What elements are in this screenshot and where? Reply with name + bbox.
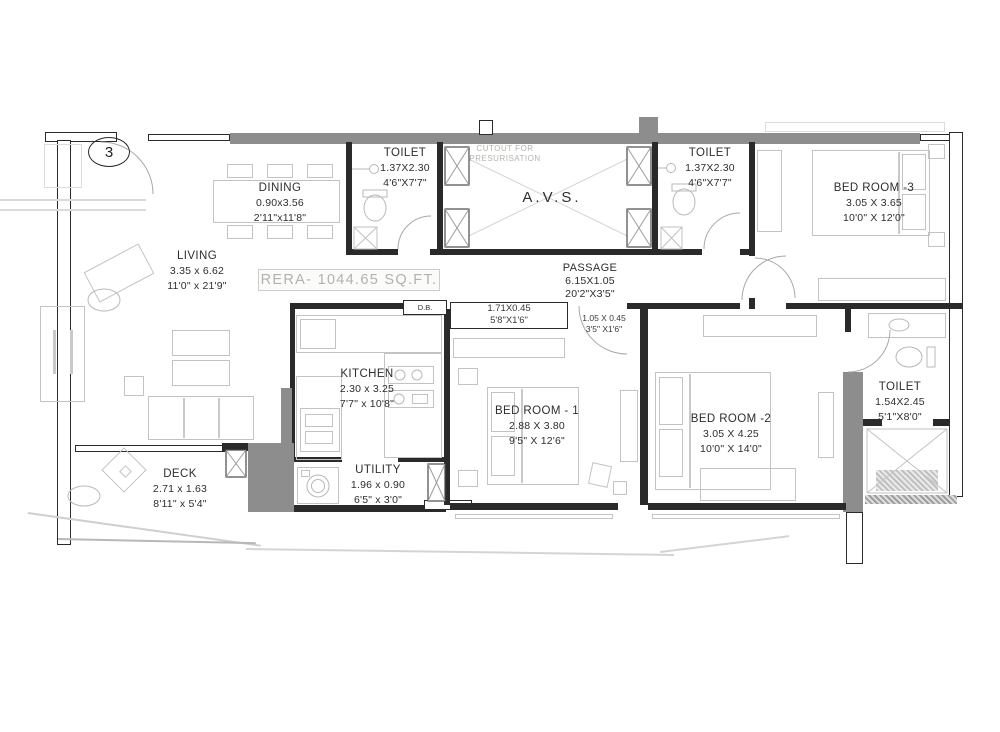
room-dim-imperial: 2'11"x11'8" — [254, 212, 306, 224]
room-dim-metric: 1.96 x 0.90 — [351, 479, 405, 491]
room-name: BED ROOM -2 — [691, 413, 771, 425]
wc-icon — [673, 189, 695, 215]
cutout-note: CUTOUT FOR PRESURISATION — [469, 144, 540, 164]
rera-area-text: RERA- 1044.65 SQ.FT. — [261, 272, 438, 288]
ottoman-icon — [88, 289, 120, 311]
room-dim-imperial: 5'1"X8'0" — [875, 411, 925, 423]
living-room-label: LIVING 3.35 x 6.62 11'0" x 21'9" — [167, 250, 226, 292]
niche-dim-imperial: 5'8"X1'6" — [451, 315, 567, 327]
unit-number-marker: 3 — [88, 137, 130, 167]
room-dim-metric: 3.05 X 3.65 — [834, 197, 914, 209]
distribution-board-box: D.B. — [403, 300, 447, 315]
door-arc — [742, 256, 786, 300]
unit-number: 3 — [105, 144, 113, 161]
room-dim-imperial: 11'0" x 21'9" — [167, 280, 226, 292]
db-label: D.B. — [418, 303, 433, 312]
room-name: DINING — [254, 182, 306, 194]
room-dim-imperial: 10'0" X 12'0" — [834, 212, 914, 224]
room-dim-metric: 1.37X2.30 — [380, 162, 430, 174]
avs-label: A.V.S. — [522, 189, 581, 206]
sink-icon — [370, 165, 379, 174]
room-name: DECK — [153, 468, 207, 480]
room-dim-metric: 1.54X2.45 — [875, 396, 925, 408]
room-name: BED ROOM -3 — [834, 182, 914, 194]
room-dim-metric: 0.90x3.56 — [254, 197, 306, 209]
room-dim-metric: 1.37X2.30 — [685, 162, 735, 174]
room-name: TOILET — [875, 381, 925, 393]
hob-burner-icon — [412, 370, 422, 380]
room-name: PASSAGE — [563, 262, 618, 274]
wc-icon — [896, 347, 922, 367]
deck-label: DECK 2.71 x 1.63 8'11" x 5'4" — [153, 468, 207, 510]
niche-small-label: 1.05 X 0.45 3'5" X1'6" — [582, 313, 625, 335]
room-name: KITCHEN — [340, 368, 394, 380]
wc-tank-icon — [363, 190, 387, 197]
plan-linework — [0, 0, 1000, 732]
room-name: BED ROOM - 1 — [495, 405, 579, 417]
washing-machine-drum-icon — [307, 475, 329, 497]
room-name: TOILET — [380, 147, 430, 159]
niche-dim-imperial: 3'5" X1'6" — [582, 324, 625, 335]
door-arc — [848, 330, 890, 372]
toilet-top-right-label: TOILET 1.37X2.30 4'6"X7'7" — [685, 147, 735, 189]
room-dim-imperial: 9'5" X 12'6" — [495, 435, 579, 447]
cutout-line2: PRESURISATION — [469, 154, 540, 164]
sink-icon — [889, 319, 909, 331]
sink-icon — [667, 164, 676, 173]
service-shaft-icon — [354, 227, 947, 493]
dining-room-label: DINING 0.90x3.56 2'11"x11'8" — [254, 182, 306, 224]
room-dim-imperial: 4'6"X7'7" — [380, 177, 430, 189]
sink-bowl-icon — [394, 394, 404, 404]
room-dim-imperial: 7'7" x 10'8" — [340, 398, 394, 410]
room-name: UTILITY — [351, 464, 405, 476]
room-dim-imperial: 10'0" X 14'0" — [691, 443, 771, 455]
room-name: TOILET — [685, 147, 735, 159]
room-dim-metric: 6.15X1.05 — [563, 275, 618, 287]
niche-dim-metric: 1.05 X 0.45 — [582, 313, 625, 324]
wc-icon — [364, 195, 386, 221]
bedroom3-label: BED ROOM -3 3.05 X 3.65 10'0" X 12'0" — [834, 182, 914, 224]
room-dim-metric: 2.30 x 3.25 — [340, 383, 394, 395]
bedroom1-label: BED ROOM - 1 2.88 X 3.80 9'5" X 12'6" — [495, 405, 579, 447]
niche-dim-metric: 1.71X0.45 — [451, 303, 567, 315]
room-dim-metric: 2.71 x 1.63 — [153, 483, 207, 495]
cutout-line1: CUTOUT FOR — [469, 144, 540, 154]
room-dim-imperial: 4'6"X7'7" — [685, 177, 735, 189]
toilet-top-left-label: TOILET 1.37X2.30 4'6"X7'7" — [380, 147, 430, 189]
passage-label: PASSAGE 6.15X1.05 20'2"X3'5" — [563, 262, 618, 300]
utility-label: UTILITY 1.96 x 0.90 6'5" x 3'0" — [351, 464, 405, 506]
toilet-right-label: TOILET 1.54X2.45 5'1"X8'0" — [875, 381, 925, 423]
rera-area-box: RERA- 1044.65 SQ.FT. — [258, 269, 440, 291]
deck-chair-icon — [68, 486, 100, 506]
room-dim-metric: 2.88 X 3.80 — [495, 420, 579, 432]
washing-machine-drum-icon — [312, 480, 325, 493]
door-arc — [398, 216, 431, 249]
floor-plan: 3 RERA- 1044.65 SQ.FT. D.B. 1.71X0.45 5'… — [0, 0, 1000, 732]
room-dim-imperial: 6'5" x 3'0" — [351, 494, 405, 506]
niche-large-box: 1.71X0.45 5'8"X1'6" — [450, 302, 568, 329]
kitchen-label: KITCHEN 2.30 x 3.25 7'7" x 10'8" — [340, 368, 394, 410]
hob-burner-icon — [395, 370, 405, 380]
room-name: LIVING — [167, 250, 226, 262]
wc-tank-icon — [927, 347, 935, 367]
room-dim-imperial: 20'2"X3'5" — [563, 288, 618, 300]
room-dim-metric: 3.35 x 6.62 — [167, 265, 226, 277]
bedroom2-label: BED ROOM -2 3.05 X 4.25 10'0" X 14'0" — [691, 413, 771, 455]
door-arc — [704, 213, 740, 249]
fixtures — [68, 164, 935, 507]
room-dim-metric: 3.05 X 4.25 — [691, 428, 771, 440]
room-dim-imperial: 8'11" x 5'4" — [153, 498, 207, 510]
